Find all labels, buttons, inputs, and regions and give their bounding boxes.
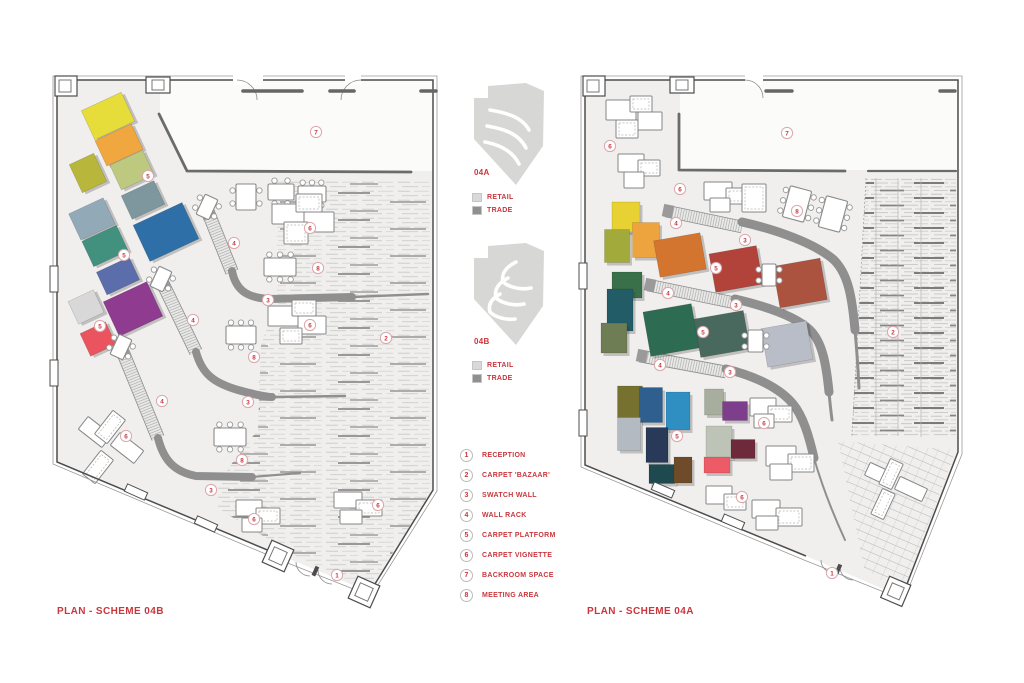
drawing-sheet: 75468354628534863661 [0, 0, 1024, 683]
callout-balloon: 6 [372, 499, 383, 510]
legend-key-item: 8MEETING AREA [460, 589, 556, 602]
callout-balloon: 5 [671, 430, 682, 441]
callout-balloon: 3 [242, 396, 253, 407]
balloon-number: 5 [146, 173, 150, 180]
mini-plan-04a-label: 04A [474, 168, 490, 177]
callout-balloon: 6 [120, 430, 131, 441]
callout-balloon: 1 [826, 567, 837, 578]
key-label: CARPET VIGNETTE [482, 552, 552, 559]
legend-key-item: 6CARPET VIGNETTE [460, 549, 556, 562]
carpet-swatch [643, 303, 702, 359]
callout-balloon: 5 [118, 249, 129, 260]
meeting-table [264, 252, 296, 282]
balloon-number: 4 [674, 220, 678, 227]
balloon-number: 5 [98, 323, 102, 330]
floor-backroom [160, 81, 433, 171]
callout-balloon: 5 [710, 262, 721, 273]
balloon-number: 3 [209, 487, 213, 494]
balloon-number: 7 [785, 130, 789, 137]
balloon-number: 8 [795, 208, 799, 215]
carpet-bazaar-texture-dark [851, 178, 956, 437]
balloon-number: 6 [376, 502, 380, 509]
carpet-swatch [640, 388, 666, 426]
plan-title-04b: PLAN - SCHEME 04B [57, 606, 164, 617]
callout-balloon: 8 [791, 205, 802, 216]
legend-retail-04b: RETAIL [472, 360, 514, 370]
retail-swatch [472, 193, 482, 202]
legend-key-list: 1RECEPTION2CARPET 'BAZAAR'3SWATCH WALL4W… [460, 449, 556, 609]
balloon-number: 3 [728, 369, 732, 376]
balloon-number: 6 [308, 322, 312, 329]
callout-balloon: 5 [697, 326, 708, 337]
balloon-number: 1 [335, 572, 339, 579]
balloon-number: 4 [191, 317, 195, 324]
carpet-swatch [601, 323, 630, 356]
callout-balloon: 8 [236, 454, 247, 465]
balloon-number: 6 [252, 516, 256, 523]
balloon-number: 6 [124, 433, 128, 440]
balloon-number: 3 [246, 399, 250, 406]
balloon-number: 6 [608, 143, 612, 150]
balloon-number: 6 [762, 420, 766, 427]
plan-scheme-04b: 75468354628534863661 [50, 75, 437, 608]
balloon-number: 5 [122, 252, 126, 259]
callout-balloon: 3 [205, 484, 216, 495]
key-label: BACKROOM SPACE [482, 572, 554, 579]
callout-balloon: 3 [262, 294, 273, 305]
legend-key-item: 3SWATCH WALL [460, 489, 556, 502]
carpet-swatch [704, 457, 733, 476]
balloon-number: 4 [160, 398, 164, 405]
trade-swatch [472, 374, 482, 383]
meeting-table [214, 422, 246, 452]
key-number-circle: 2 [460, 469, 473, 482]
callout-balloon: 6 [736, 491, 747, 502]
callout-balloon: 2 [887, 326, 898, 337]
balloon-number: 2 [891, 329, 895, 336]
carpet-swatch [723, 402, 751, 424]
balloon-number: 5 [675, 433, 679, 440]
carpet-swatch [646, 428, 671, 466]
carpet-swatch [605, 230, 633, 266]
callout-balloon: 6 [248, 513, 259, 524]
carpet-swatch [674, 457, 695, 486]
legend-trade-04b: TRADE [472, 373, 513, 383]
carpet-swatch [706, 426, 735, 461]
carpet-swatch [731, 440, 758, 462]
balloon-number: 4 [232, 240, 236, 247]
balloon-number: 6 [678, 186, 682, 193]
legend-trade-04a: TRADE [472, 205, 513, 215]
key-label: CARPET PLATFORM [482, 532, 556, 539]
callout-balloon: 7 [781, 127, 792, 138]
callout-balloon: 4 [662, 287, 673, 298]
retail-swatch [472, 361, 482, 370]
key-number-circle: 7 [460, 569, 473, 582]
callout-balloon: 4 [228, 237, 239, 248]
balloon-number: 8 [240, 457, 244, 464]
balloon-number: 3 [266, 297, 270, 304]
balloon-number: 4 [666, 290, 670, 297]
callout-balloon: 6 [758, 417, 769, 428]
balloon-number: 5 [714, 265, 718, 272]
balloon-number: 8 [252, 354, 256, 361]
callout-balloon: 4 [156, 395, 167, 406]
key-number-circle: 6 [460, 549, 473, 562]
balloon-number: 2 [384, 335, 388, 342]
legend-key-item: 7BACKROOM SPACE [460, 569, 556, 582]
callout-balloon: 5 [142, 170, 153, 181]
callout-balloon: 4 [654, 359, 665, 370]
callout-balloon: 1 [331, 569, 342, 580]
callout-balloon: 2 [380, 332, 391, 343]
key-number-circle: 1 [460, 449, 473, 462]
carpet-swatch [666, 392, 693, 433]
key-label: WALL RACK [482, 512, 527, 519]
balloon-number: 8 [316, 265, 320, 272]
legend-retail-04a: RETAIL [472, 192, 514, 202]
callout-balloon: 3 [724, 366, 735, 377]
callout-balloon: 8 [312, 262, 323, 273]
balloon-number: 6 [308, 225, 312, 232]
legend-key-item: 2CARPET 'BAZAAR' [460, 469, 556, 482]
callout-balloon: 8 [248, 351, 259, 362]
key-label: MEETING AREA [482, 592, 539, 599]
key-number-circle: 4 [460, 509, 473, 522]
key-number-circle: 5 [460, 529, 473, 542]
callout-balloon: 6 [304, 222, 315, 233]
key-label: RECEPTION [482, 452, 526, 459]
balloon-number: 1 [830, 570, 834, 577]
meeting-table [226, 320, 256, 350]
carpet-swatch [654, 232, 710, 280]
legend-key-item: 5CARPET PLATFORM [460, 529, 556, 542]
callout-balloon: 5 [94, 320, 105, 331]
balloon-number: 5 [701, 329, 705, 336]
callout-balloon: 6 [674, 183, 685, 194]
balloon-number: 3 [743, 237, 747, 244]
callout-balloon: 7 [310, 126, 321, 137]
callout-balloon: 3 [730, 299, 741, 310]
key-number-circle: 3 [460, 489, 473, 502]
callout-balloon: 4 [670, 217, 681, 228]
mini-plan-04b [468, 242, 548, 350]
trade-swatch [472, 206, 482, 215]
callout-balloon: 4 [187, 314, 198, 325]
carpet-swatch [618, 418, 644, 454]
balloon-number: 4 [658, 362, 662, 369]
balloon-number: 7 [314, 129, 318, 136]
balloon-number: 3 [734, 302, 738, 309]
mini-plan-04b-label: 04B [474, 337, 490, 346]
carpet-swatch [773, 258, 831, 311]
floor-backroom [680, 81, 957, 170]
legend-key-item: 1RECEPTION [460, 449, 556, 462]
callout-balloon: 3 [739, 234, 750, 245]
plan-title-04a: PLAN - SCHEME 04A [587, 606, 694, 617]
carpet-swatch [649, 465, 678, 487]
legend-key-item: 4WALL RACK [460, 509, 556, 522]
key-number-circle: 8 [460, 589, 473, 602]
plan-scheme-04a: 76684354352435661 [579, 75, 962, 606]
balloon-number: 6 [740, 494, 744, 501]
callout-balloon: 6 [304, 319, 315, 330]
key-label: SWATCH WALL [482, 492, 537, 499]
key-label: CARPET 'BAZAAR' [482, 472, 550, 479]
callout-balloon: 6 [604, 140, 615, 151]
